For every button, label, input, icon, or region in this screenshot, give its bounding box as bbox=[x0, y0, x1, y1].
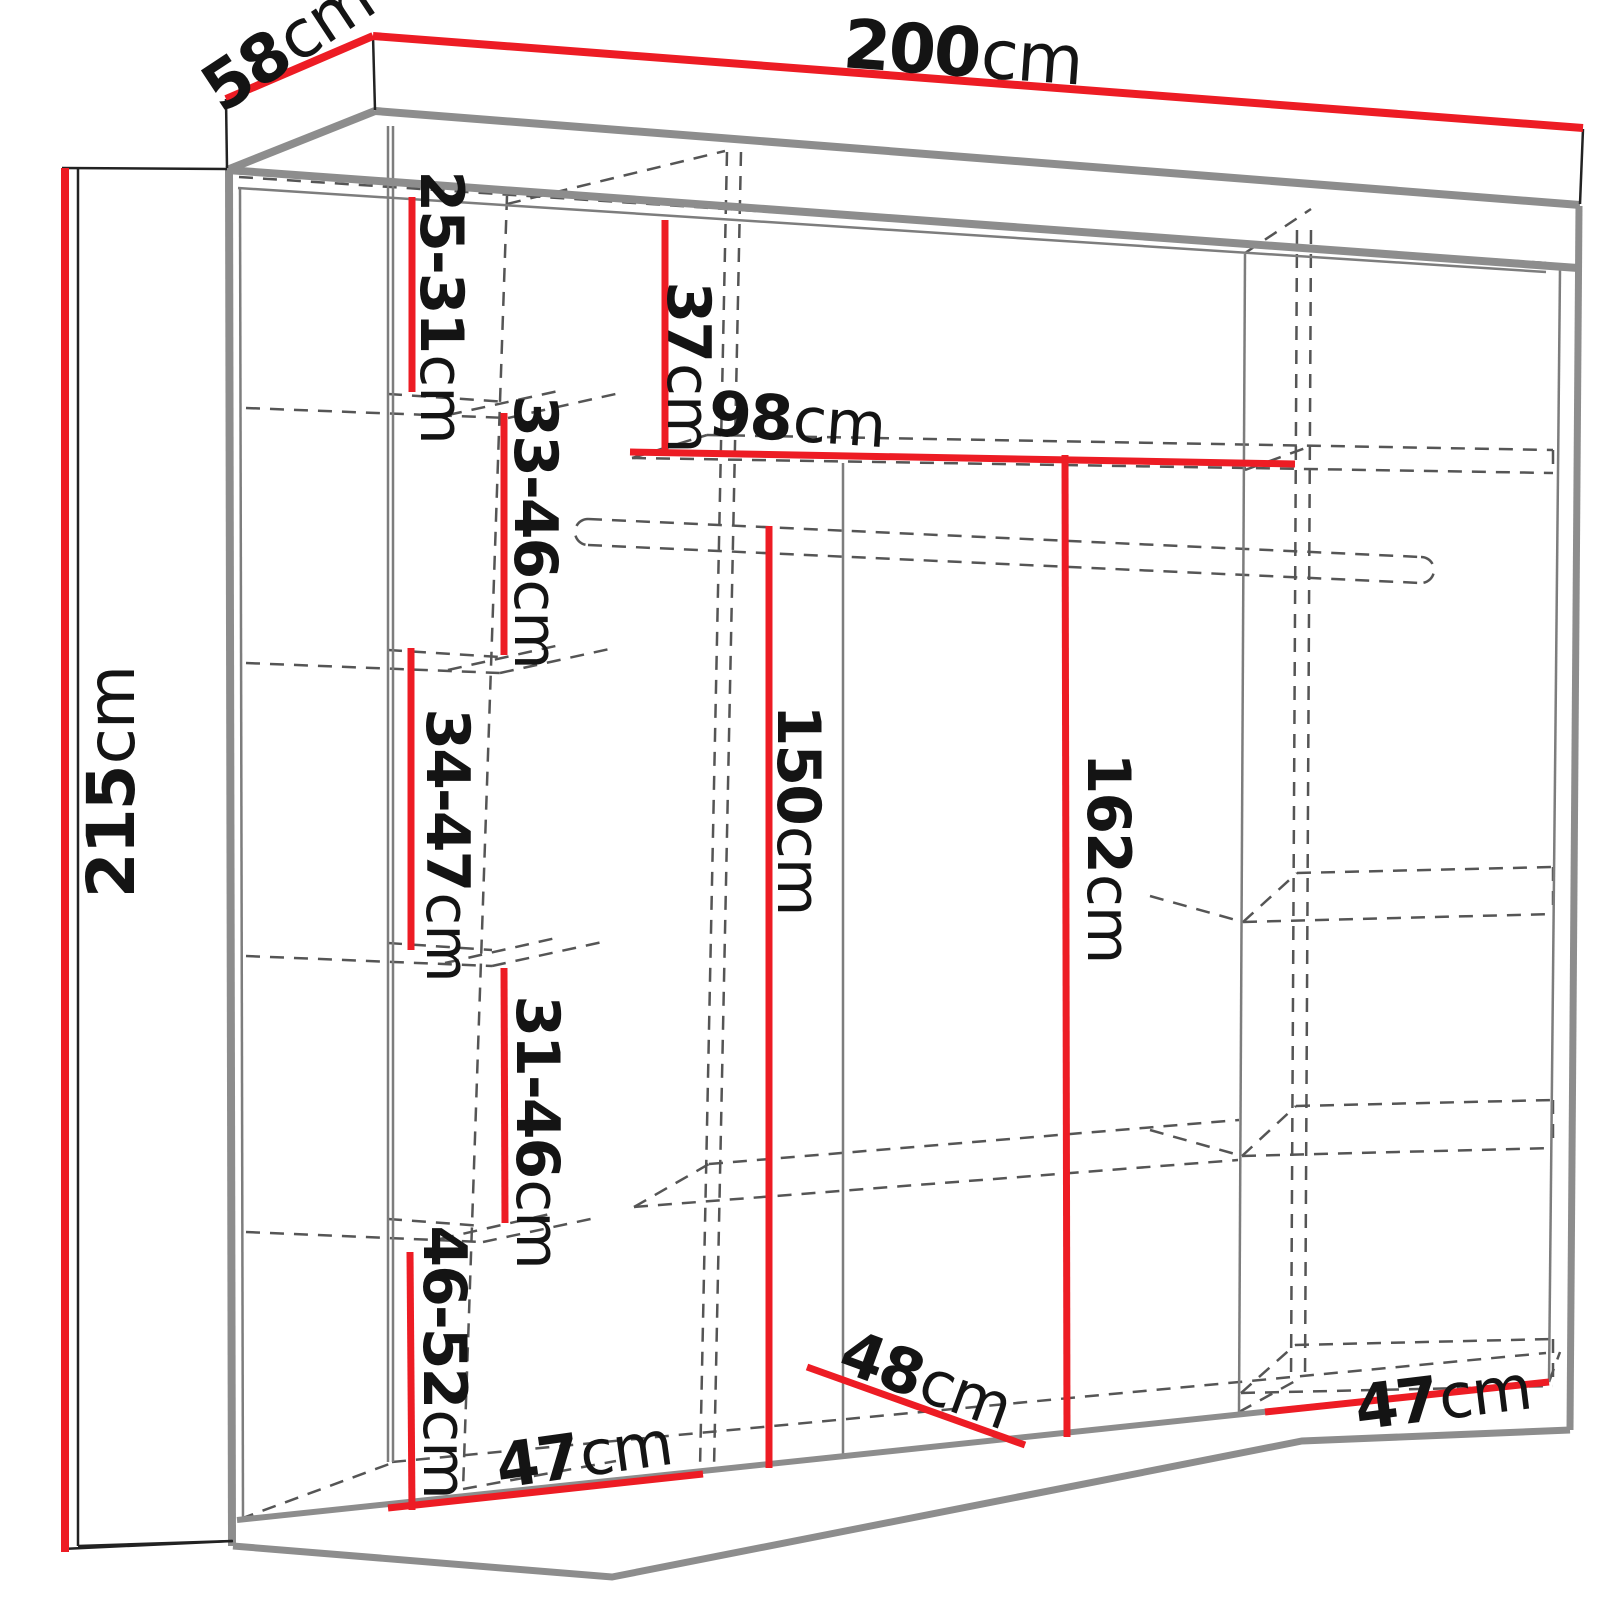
dimension-label-shelf-gap-25-31: 25-31cm bbox=[411, 170, 471, 443]
dimension-value: 150 bbox=[763, 705, 833, 824]
dimension-label-shelf-width-98: 98cm bbox=[707, 383, 888, 457]
dimension-label-width-200: 200cm bbox=[841, 11, 1085, 96]
dimension-unit: cm bbox=[1434, 1351, 1535, 1435]
dimension-label-shelf-gap-34-47: 34-47cm bbox=[417, 708, 477, 981]
dimension-unit: cm bbox=[1073, 874, 1143, 963]
wardrobe-dimension-diagram: 200cm 58cm 215cm 25-31cm 33-46cm 34-47cm… bbox=[0, 0, 1600, 1619]
dimension-value: 34-47 bbox=[412, 708, 482, 890]
dimension-value: 37 bbox=[653, 282, 723, 362]
dimension-unit: cm bbox=[409, 1409, 479, 1498]
dimension-unit: cm bbox=[978, 15, 1085, 101]
dimension-unit: cm bbox=[412, 892, 482, 981]
dimension-unit: cm bbox=[500, 579, 570, 668]
dimension-unit: cm bbox=[575, 1406, 677, 1491]
dimension-value: 47 bbox=[1351, 1362, 1442, 1444]
dimension-label-height-215: 215cm bbox=[79, 666, 145, 898]
dimension-value: 33-46 bbox=[500, 395, 570, 577]
dimension-value: 46-52 bbox=[409, 1225, 479, 1407]
dimension-unit: cm bbox=[406, 354, 476, 443]
dimension-unit: cm bbox=[73, 666, 150, 765]
dimension-label-shelf-gap-33-46: 33-46cm bbox=[505, 395, 565, 668]
dimension-value: 215 bbox=[73, 766, 150, 898]
dimension-unit: cm bbox=[790, 383, 887, 462]
dimension-label-hanging-height-150: 150cm bbox=[768, 705, 828, 916]
clothes-rail bbox=[575, 519, 1434, 583]
dimension-value: 31-46 bbox=[502, 995, 572, 1177]
dimension-value: 162 bbox=[1073, 753, 1143, 872]
dimension-label-shelf-gap-46-52: 46-52cm bbox=[414, 1225, 474, 1498]
dimension-value: 98 bbox=[706, 377, 793, 456]
dimension-unit: cm bbox=[502, 1179, 572, 1268]
dimension-value: 47 bbox=[491, 1419, 583, 1503]
dim-line-162 bbox=[1065, 455, 1067, 1437]
dimension-label-shelf-gap-31-46: 31-46cm bbox=[507, 995, 567, 1268]
dimension-value: 25-31 bbox=[406, 170, 476, 352]
dimension-unit: cm bbox=[763, 826, 833, 915]
right-shelves bbox=[1150, 867, 1553, 1393]
dim-line-98 bbox=[630, 452, 1295, 464]
dimension-value: 200 bbox=[841, 5, 982, 94]
dimension-label-shelf-height-162: 162cm bbox=[1078, 753, 1138, 964]
middle-bottom-shelf bbox=[634, 1120, 1239, 1207]
